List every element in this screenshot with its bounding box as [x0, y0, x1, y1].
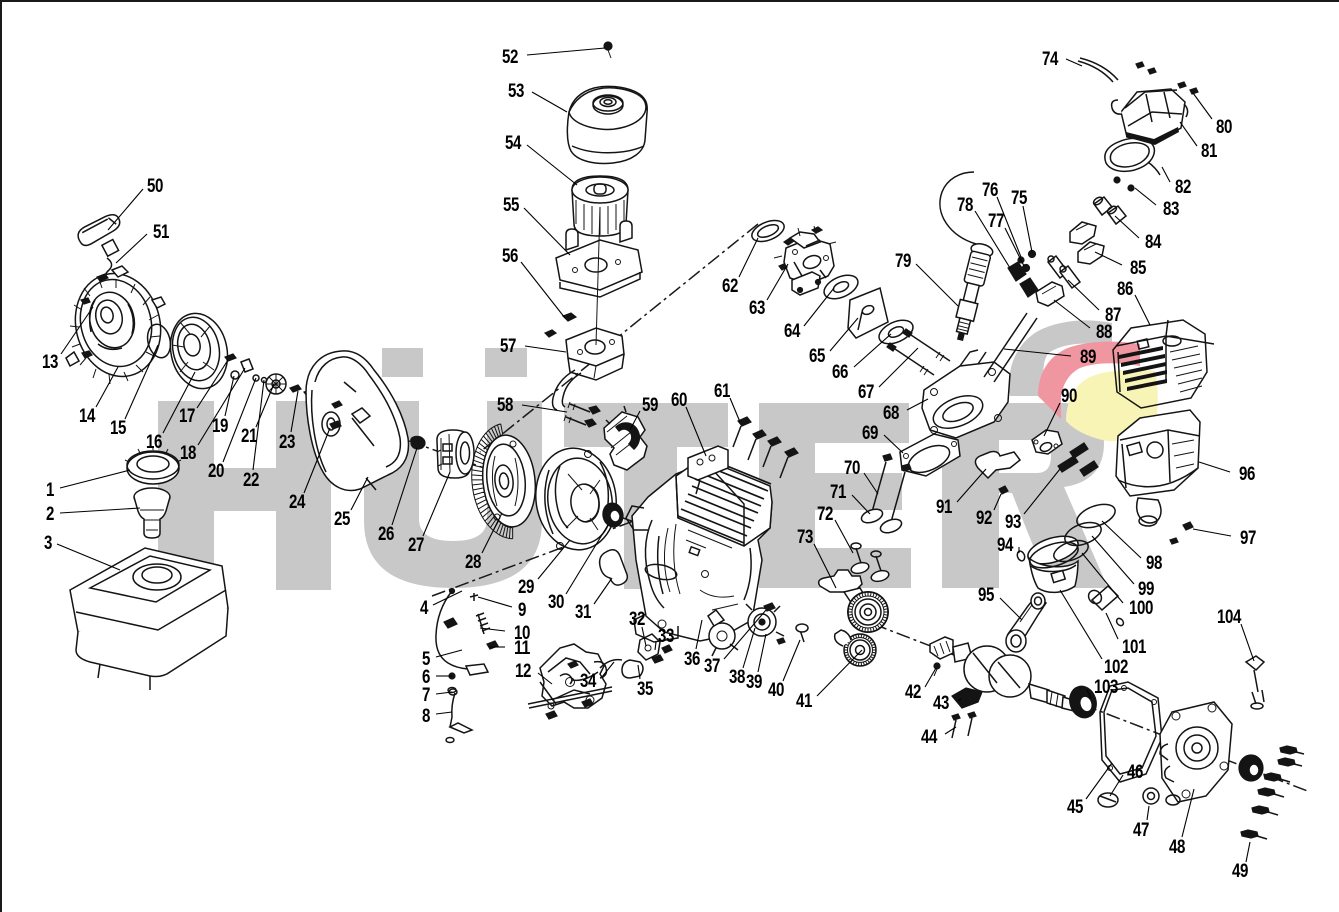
svg-text:30: 30 — [548, 591, 564, 613]
svg-text:39: 39 — [746, 671, 762, 693]
svg-text:73: 73 — [797, 526, 813, 548]
svg-text:94: 94 — [997, 534, 1013, 556]
svg-text:9: 9 — [518, 599, 526, 621]
svg-text:23: 23 — [279, 431, 295, 453]
svg-text:35: 35 — [637, 678, 653, 700]
svg-text:86: 86 — [1117, 278, 1133, 300]
svg-text:8: 8 — [422, 705, 430, 727]
svg-text:13: 13 — [42, 351, 58, 373]
svg-text:27: 27 — [408, 534, 424, 556]
svg-text:17: 17 — [179, 405, 195, 427]
svg-text:37: 37 — [704, 655, 720, 677]
svg-text:18: 18 — [180, 442, 196, 464]
svg-text:62: 62 — [722, 275, 738, 297]
svg-text:80: 80 — [1216, 116, 1232, 138]
svg-text:95: 95 — [978, 584, 994, 606]
svg-text:68: 68 — [883, 402, 899, 424]
svg-text:88: 88 — [1096, 321, 1112, 343]
svg-text:69: 69 — [862, 422, 878, 444]
svg-text:22: 22 — [243, 469, 259, 491]
svg-text:4: 4 — [420, 597, 428, 619]
svg-text:25: 25 — [334, 508, 350, 530]
svg-text:101: 101 — [1122, 636, 1146, 658]
svg-text:76: 76 — [982, 179, 998, 201]
svg-text:78: 78 — [957, 194, 973, 216]
svg-text:90: 90 — [1061, 385, 1077, 407]
svg-text:26: 26 — [378, 523, 394, 545]
svg-text:97: 97 — [1240, 527, 1256, 549]
svg-text:46: 46 — [1127, 761, 1143, 783]
svg-text:70: 70 — [844, 457, 860, 479]
svg-text:2: 2 — [46, 503, 54, 525]
svg-text:53: 53 — [508, 80, 524, 102]
svg-text:66: 66 — [832, 361, 848, 383]
svg-text:45: 45 — [1067, 796, 1083, 818]
svg-text:43: 43 — [933, 692, 949, 714]
svg-text:3: 3 — [44, 532, 52, 554]
svg-text:19: 19 — [212, 415, 228, 437]
svg-text:100: 100 — [1129, 597, 1153, 619]
svg-text:56: 56 — [502, 245, 518, 267]
svg-text:16: 16 — [146, 431, 162, 453]
svg-text:67: 67 — [858, 381, 874, 403]
svg-text:64: 64 — [784, 320, 800, 342]
svg-text:1: 1 — [46, 479, 54, 501]
svg-text:14: 14 — [79, 405, 95, 427]
svg-text:51: 51 — [153, 221, 169, 243]
svg-text:33: 33 — [658, 625, 674, 647]
svg-text:34: 34 — [580, 670, 596, 692]
svg-text:31: 31 — [575, 601, 591, 623]
svg-text:79: 79 — [895, 250, 911, 272]
svg-text:102: 102 — [1104, 656, 1128, 678]
svg-text:20: 20 — [208, 460, 224, 482]
svg-text:28: 28 — [465, 551, 481, 573]
svg-text:41: 41 — [796, 690, 812, 712]
svg-text:84: 84 — [1145, 231, 1161, 253]
svg-text:50: 50 — [147, 175, 163, 197]
svg-text:103: 103 — [1094, 676, 1118, 698]
svg-text:36: 36 — [684, 648, 700, 670]
svg-text:59: 59 — [642, 394, 658, 416]
svg-text:47: 47 — [1133, 819, 1149, 841]
svg-text:58: 58 — [497, 394, 513, 416]
svg-text:57: 57 — [500, 335, 516, 357]
svg-text:49: 49 — [1232, 860, 1248, 882]
svg-text:12: 12 — [515, 660, 531, 682]
svg-text:55: 55 — [503, 194, 519, 216]
svg-text:63: 63 — [749, 297, 765, 319]
svg-text:38: 38 — [729, 666, 745, 688]
svg-text:89: 89 — [1080, 346, 1096, 368]
svg-text:91: 91 — [936, 496, 952, 518]
svg-text:11: 11 — [514, 637, 531, 659]
svg-text:24: 24 — [289, 491, 305, 513]
svg-text:81: 81 — [1201, 140, 1217, 162]
svg-text:96: 96 — [1239, 463, 1255, 485]
svg-text:44: 44 — [921, 726, 937, 748]
svg-text:29: 29 — [518, 576, 534, 598]
svg-text:61: 61 — [714, 380, 730, 402]
svg-text:60: 60 — [671, 389, 687, 411]
svg-text:71: 71 — [830, 481, 846, 503]
svg-text:74: 74 — [1042, 48, 1058, 70]
svg-text:77: 77 — [988, 210, 1004, 232]
svg-text:32: 32 — [629, 608, 645, 630]
svg-text:85: 85 — [1130, 257, 1146, 279]
svg-text:65: 65 — [809, 345, 825, 367]
svg-text:42: 42 — [905, 681, 921, 703]
svg-text:92: 92 — [976, 507, 992, 529]
svg-text:72: 72 — [817, 503, 833, 525]
svg-text:52: 52 — [502, 46, 518, 68]
svg-text:83: 83 — [1163, 198, 1179, 220]
svg-text:93: 93 — [1005, 511, 1021, 533]
svg-text:40: 40 — [768, 679, 784, 701]
svg-text:15: 15 — [110, 417, 126, 439]
svg-text:21: 21 — [241, 425, 257, 447]
svg-text:104: 104 — [1217, 606, 1241, 628]
svg-text:82: 82 — [1175, 176, 1191, 198]
svg-text:54: 54 — [505, 132, 521, 154]
svg-text:7: 7 — [422, 684, 430, 706]
svg-text:75: 75 — [1011, 187, 1027, 209]
svg-text:48: 48 — [1169, 836, 1185, 858]
svg-text:98: 98 — [1146, 552, 1162, 574]
